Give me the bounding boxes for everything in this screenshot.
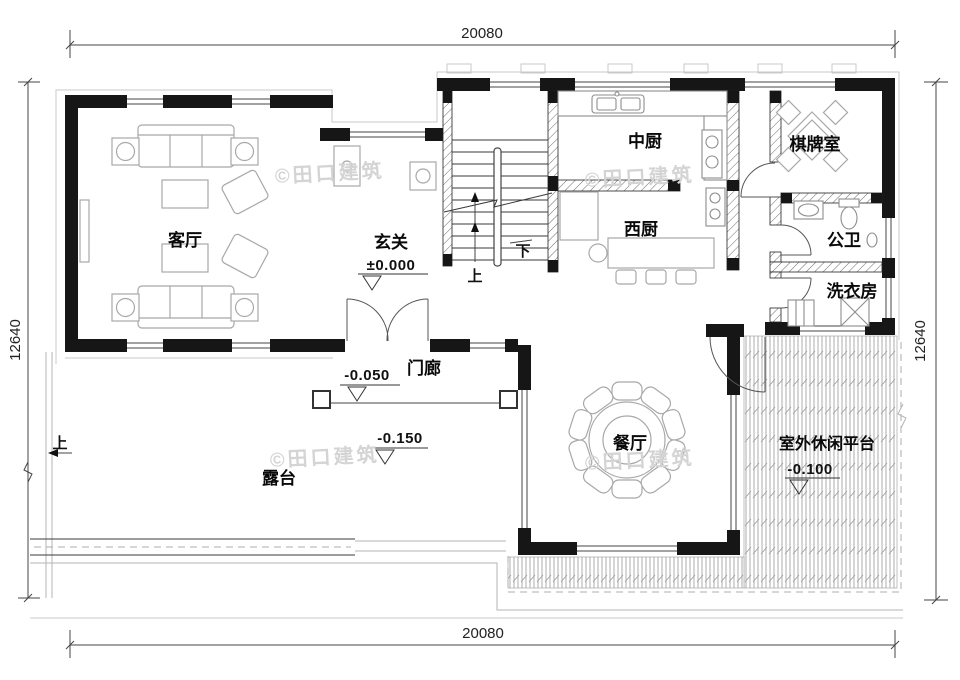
watermark-1: ©田口建筑 (274, 158, 385, 188)
porch-columns (313, 391, 517, 408)
dim-left: 12640 (7, 319, 24, 361)
level-terrace: -0.150 (377, 430, 423, 447)
level-foyer: ±0.000 (367, 257, 416, 274)
site-step-up-label: 上 (52, 435, 67, 452)
room-label-laundry: 洗衣房 (827, 281, 878, 301)
staircase: 上 下 (444, 140, 552, 285)
dim-top: 20080 (461, 25, 503, 42)
laundry-fixtures (788, 298, 869, 326)
room-label-platform: 室外休闲平台 (779, 434, 875, 453)
dim-bottom: 20080 (462, 625, 504, 642)
room-label-game: 棋牌室 (790, 134, 841, 154)
room-label-kitchen-cn: 中厨 (628, 131, 662, 151)
stair-down-label: 下 (515, 243, 530, 260)
level-porch: -0.050 (344, 367, 390, 384)
floor-plan-sheet: 上 下 (0, 0, 960, 680)
floor-plan-drawing: 上 下 (0, 0, 960, 680)
stair-up-label: 上 (467, 268, 482, 285)
living-room-furniture (80, 125, 269, 328)
room-label-foyer: 玄关 (374, 232, 408, 252)
room-label-porch: 门廊 (407, 358, 441, 378)
room-label-wc: 公卫 (827, 231, 861, 250)
dim-right: 12640 (912, 320, 929, 362)
level-platform: -0.100 (787, 461, 833, 478)
room-label-kitchen-w: 西厨 (624, 220, 658, 239)
room-label-living: 客厅 (167, 230, 202, 250)
watermark-3: ©田口建筑 (269, 442, 380, 472)
